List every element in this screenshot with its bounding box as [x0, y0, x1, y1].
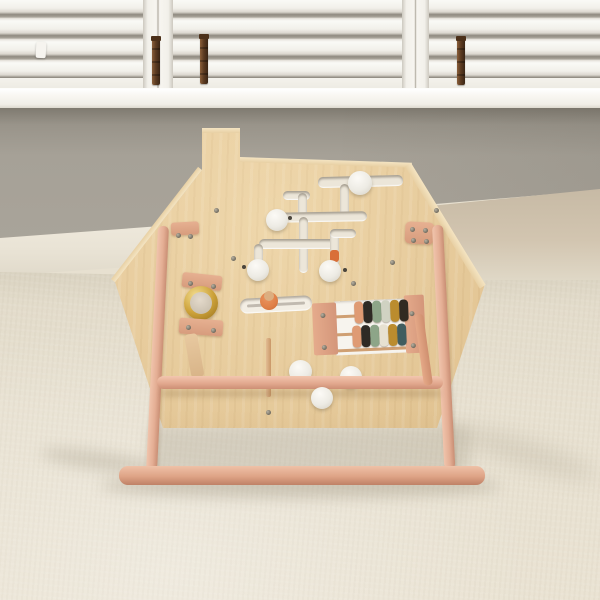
abacus-bead	[370, 325, 379, 347]
screw-icon	[186, 325, 191, 330]
mirror-glass	[190, 292, 212, 314]
abacus-bead	[363, 301, 372, 323]
tilt-rod-cap	[151, 36, 161, 41]
maze-pin	[288, 216, 292, 220]
screw-icon	[188, 234, 193, 239]
tilt-rod-icon	[200, 36, 208, 84]
maze-knob	[266, 209, 288, 231]
maze-knob	[348, 171, 372, 195]
screw-icon	[214, 208, 219, 213]
photo-scene	[0, 0, 600, 600]
crossbar-shadow	[162, 390, 440, 397]
stand-floor-bar	[119, 466, 485, 485]
tilt-rod-cap	[199, 34, 209, 39]
screw-icon	[231, 256, 236, 261]
abacus-row-bottom	[352, 323, 406, 347]
stand-crossbar	[157, 376, 443, 389]
abacus-bead	[352, 325, 361, 347]
screw-icon	[211, 284, 216, 289]
louver-tab	[36, 42, 47, 59]
screw-icon	[390, 260, 395, 265]
abacus-bead	[361, 325, 370, 347]
tilt-rod-cap	[456, 36, 466, 41]
shutter-panel-left	[0, 0, 143, 80]
maze-knob	[247, 259, 269, 281]
screw-icon	[211, 328, 216, 333]
screw-icon	[266, 410, 271, 415]
abacus-row-top	[354, 299, 408, 323]
tilt-rod-icon	[457, 37, 465, 85]
stand-hinge-left	[171, 221, 200, 235]
chimney-edge	[202, 128, 240, 133]
tilt-rod-icon	[152, 37, 160, 85]
stand-hinge-right	[404, 221, 434, 244]
slider-peg	[264, 291, 274, 301]
abacus-bead	[354, 301, 363, 323]
maze-track	[259, 239, 335, 249]
screw-icon	[411, 238, 416, 243]
abacus	[312, 295, 427, 360]
screw-icon	[176, 233, 181, 238]
maze-pin	[343, 268, 347, 272]
shutter-panel-right	[429, 0, 600, 80]
abacus-bead	[397, 323, 406, 345]
screw-icon	[410, 227, 415, 232]
abacus-bead	[399, 299, 408, 321]
screw-icon	[434, 208, 439, 213]
abacus-bead	[372, 300, 381, 322]
screw-icon	[188, 281, 193, 286]
abacus-bead	[379, 324, 388, 346]
screw-icon	[423, 228, 428, 233]
abacus-bead	[381, 300, 390, 322]
abacus-bead	[388, 324, 397, 346]
maze-track	[330, 229, 356, 238]
maze-pin	[242, 265, 246, 269]
window-sill	[0, 88, 600, 111]
maze-knob	[319, 260, 341, 282]
board-knob	[311, 387, 333, 409]
screw-icon	[424, 239, 429, 244]
shutter-stile-right	[402, 0, 429, 90]
abacus-bead	[390, 300, 399, 322]
screw-icon	[351, 281, 356, 286]
